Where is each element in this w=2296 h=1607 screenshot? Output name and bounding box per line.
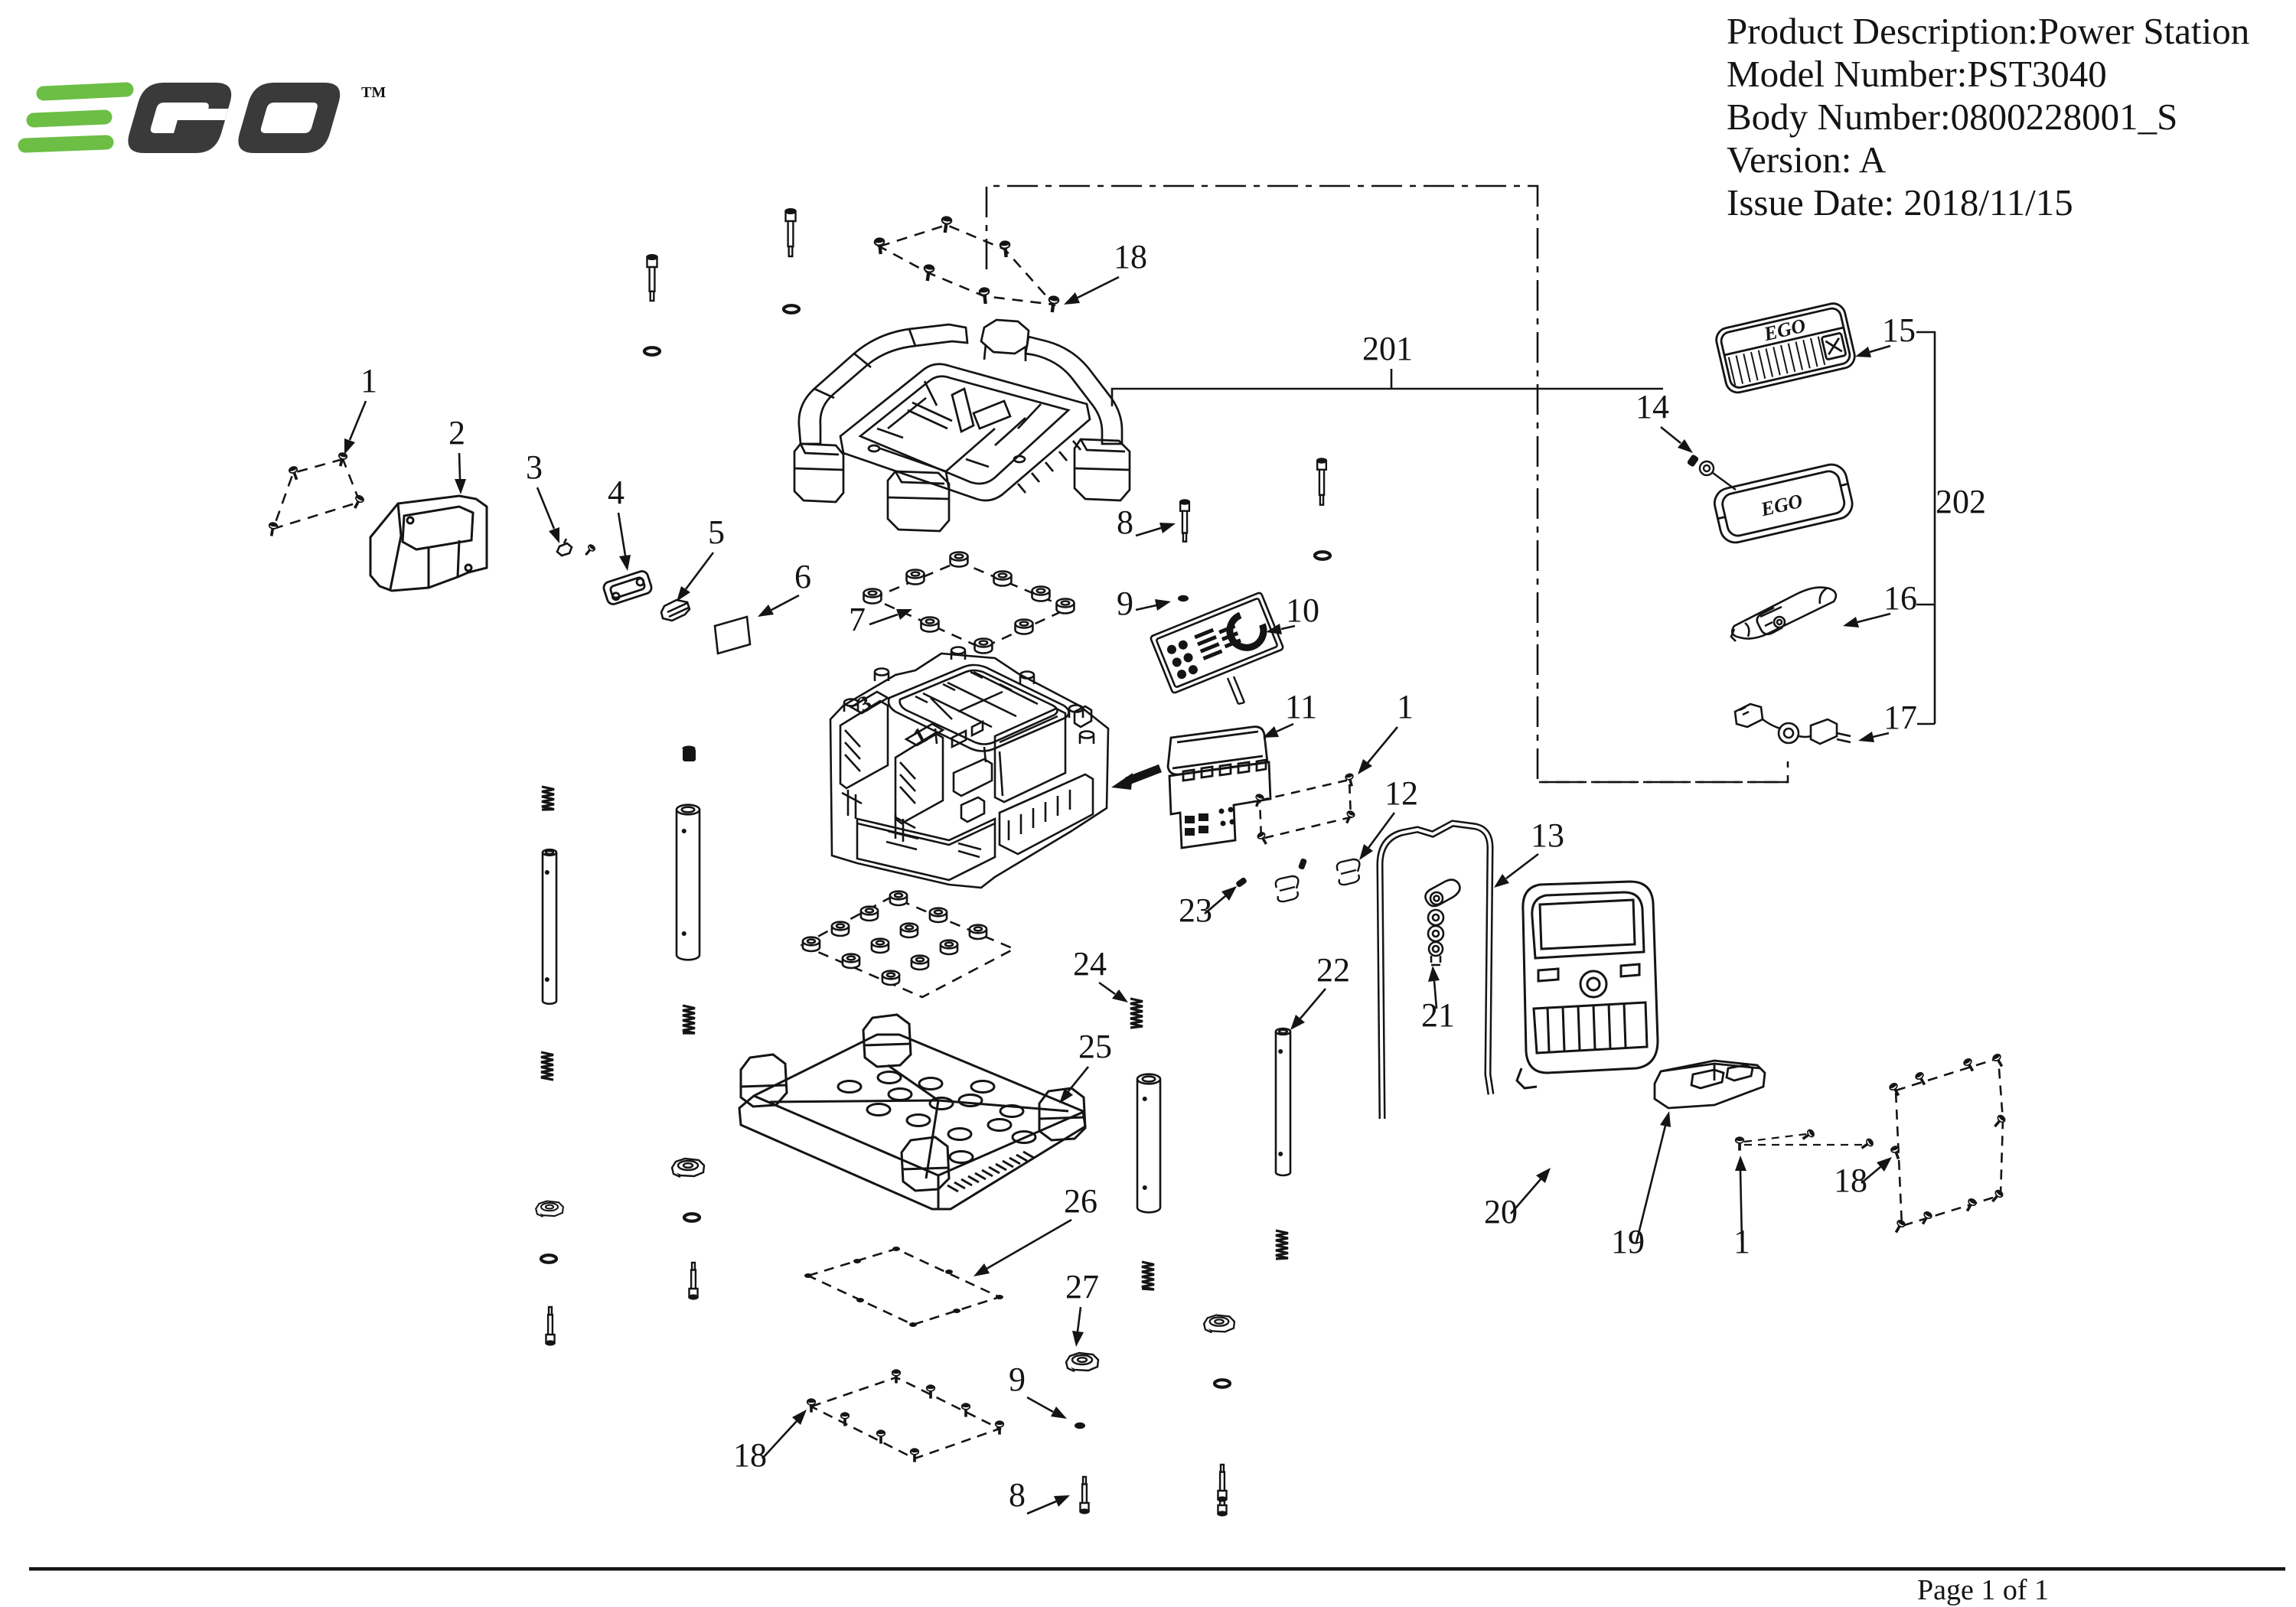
svg-text:14: 14: [1636, 388, 1669, 425]
svg-text:3: 3: [526, 448, 543, 486]
svg-text:1: 1: [360, 362, 377, 399]
svg-text:15: 15: [1882, 311, 1916, 349]
svg-text:5: 5: [708, 513, 725, 551]
svg-text:8: 8: [1117, 504, 1133, 541]
svg-text:9: 9: [1117, 585, 1133, 622]
svg-text:7: 7: [849, 601, 866, 638]
svg-text:4: 4: [608, 474, 625, 511]
svg-text:Version: A: Version: A: [1727, 139, 1887, 181]
svg-text:22: 22: [1316, 951, 1350, 989]
svg-text:6: 6: [794, 558, 811, 595]
svg-text:201: 201: [1362, 330, 1413, 367]
svg-text:9: 9: [1009, 1361, 1026, 1398]
svg-text:Model Number:PST3040: Model Number:PST3040: [1727, 53, 2107, 95]
svg-text:25: 25: [1078, 1028, 1112, 1065]
svg-text:2: 2: [448, 414, 465, 451]
svg-text:18: 18: [733, 1436, 767, 1474]
svg-text:13: 13: [1531, 817, 1564, 854]
svg-text:24: 24: [1073, 945, 1107, 983]
svg-text:10: 10: [1286, 592, 1319, 629]
svg-text:26: 26: [1064, 1182, 1097, 1220]
svg-text:8: 8: [1009, 1476, 1026, 1514]
svg-text:12: 12: [1384, 774, 1418, 812]
svg-text:17: 17: [1883, 699, 1917, 736]
svg-text:Page 1 of 1: Page 1 of 1: [1917, 1574, 2049, 1606]
svg-text:18: 18: [1834, 1162, 1867, 1199]
svg-text:27: 27: [1065, 1268, 1099, 1305]
svg-text:TM: TM: [361, 84, 386, 101]
svg-text:Body Number:0800228001_S: Body Number:0800228001_S: [1727, 96, 2177, 138]
svg-text:Issue Date: 2018/11/15: Issue Date: 2018/11/15: [1727, 181, 2073, 223]
svg-text:21: 21: [1421, 996, 1455, 1034]
svg-text:18: 18: [1114, 238, 1147, 275]
svg-text:Product Description:Power Stat: Product Description:Power Station: [1727, 10, 2249, 52]
svg-text:16: 16: [1883, 579, 1917, 617]
svg-text:1: 1: [1397, 688, 1414, 725]
svg-text:11: 11: [1285, 688, 1317, 725]
svg-text:202: 202: [1936, 483, 1986, 520]
